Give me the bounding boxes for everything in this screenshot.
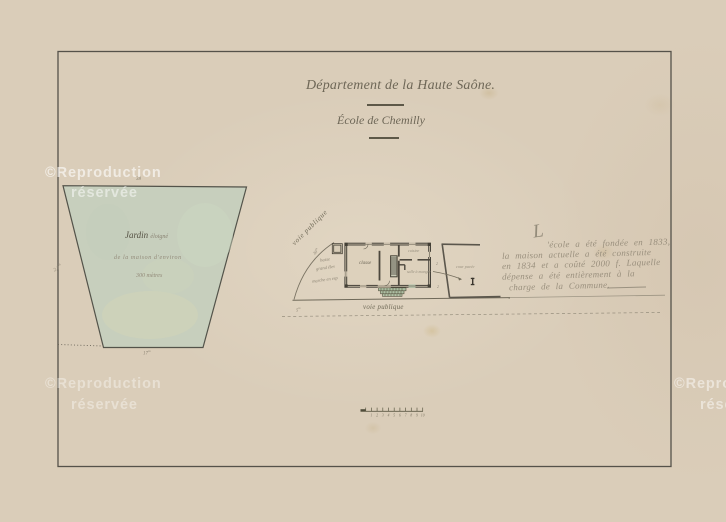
- svg-text:7: 7: [405, 414, 407, 418]
- svg-text:4: 4: [388, 414, 390, 418]
- svg-text:9: 9: [416, 414, 418, 418]
- svg-text:6: 6: [399, 414, 401, 418]
- svg-text:3: 3: [382, 414, 384, 418]
- svg-text:2: 2: [376, 414, 378, 418]
- svg-text:10: 10: [421, 414, 425, 418]
- svg-text:1: 1: [371, 414, 373, 418]
- svg-text:2: 2: [436, 262, 438, 266]
- svg-text:2: 2: [437, 285, 439, 289]
- svg-text:5: 5: [393, 414, 395, 418]
- svg-text:8: 8: [410, 414, 412, 418]
